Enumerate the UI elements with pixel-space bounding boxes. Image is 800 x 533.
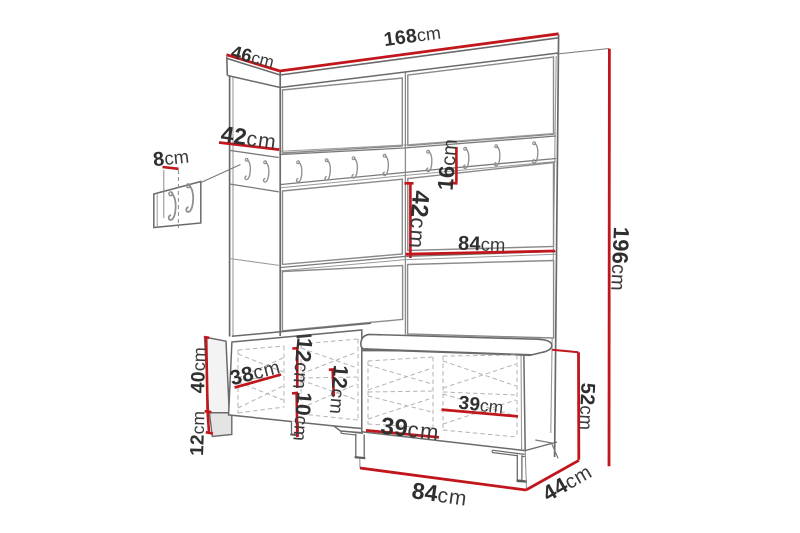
svg-text:52cm: 52cm xyxy=(574,382,598,430)
svg-text:42cm: 42cm xyxy=(403,190,434,251)
svg-text:84cm: 84cm xyxy=(458,233,506,257)
svg-text:12cm: 12cm xyxy=(187,411,210,457)
svg-text:40cm: 40cm xyxy=(187,347,211,394)
